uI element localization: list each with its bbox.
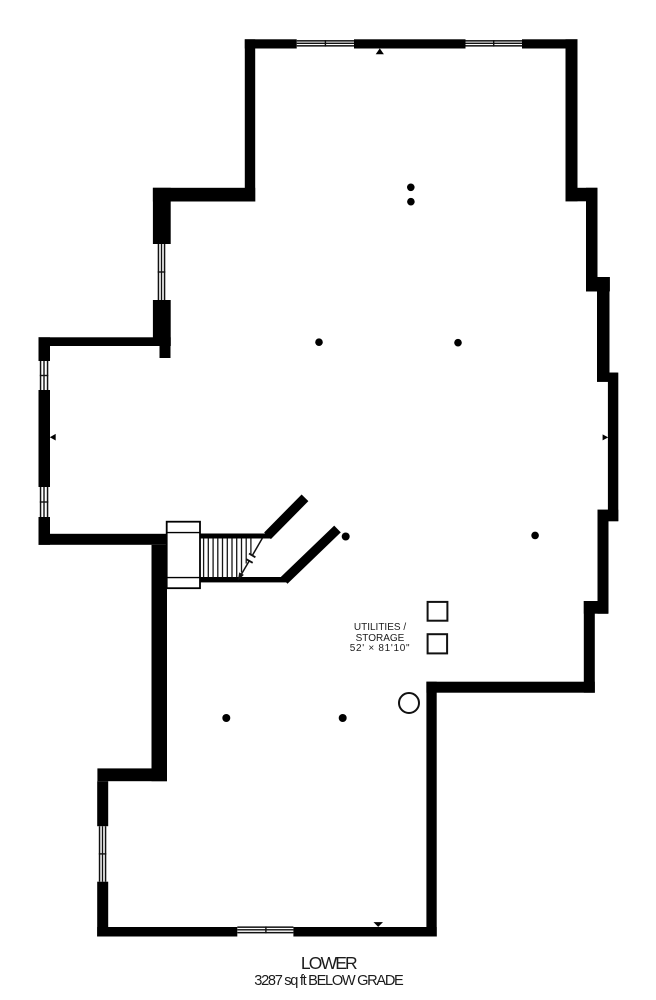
- svg-text:3287 sq ft BELOW GRADE: 3287 sq ft BELOW GRADE: [254, 973, 404, 989]
- svg-text:52' × 81'10": 52' × 81'10": [350, 643, 411, 654]
- svg-text:LOWER: LOWER: [301, 953, 357, 973]
- svg-text:UTILITIES /: UTILITIES /: [354, 622, 406, 633]
